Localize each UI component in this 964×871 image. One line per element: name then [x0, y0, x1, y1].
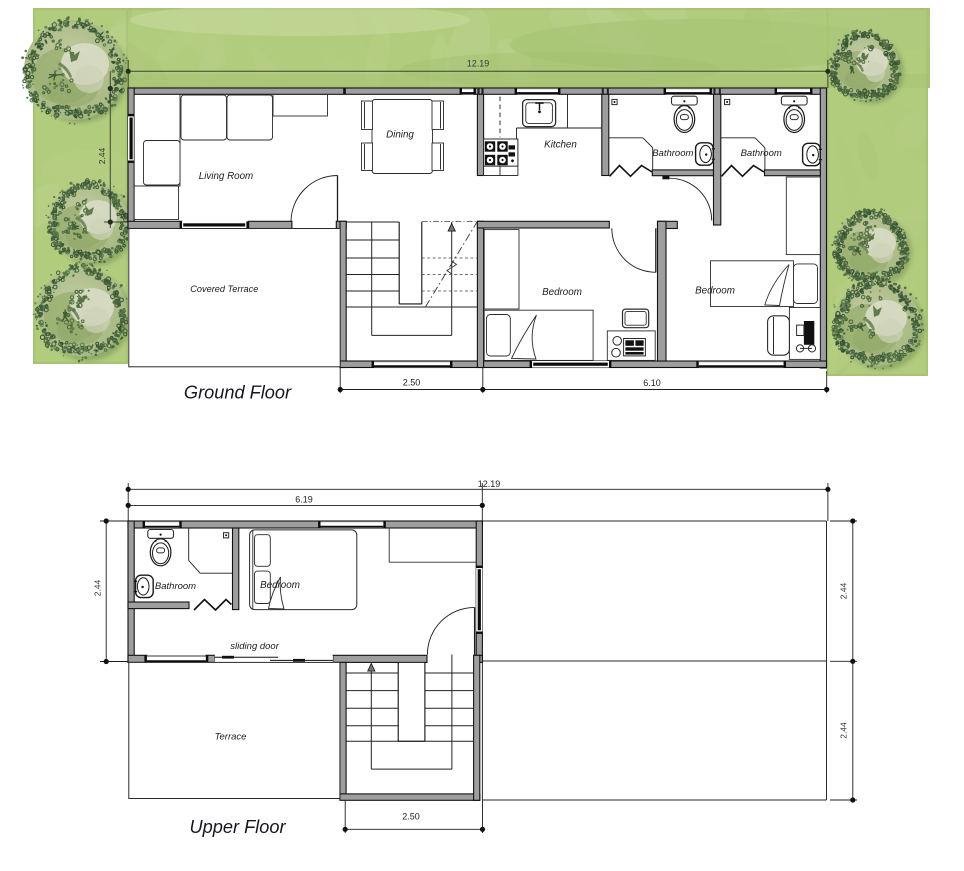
svg-text:12.19: 12.19 [478, 479, 501, 489]
svg-text:Bedroom: Bedroom [542, 287, 582, 298]
svg-text:Bedroom: Bedroom [695, 285, 735, 296]
svg-text:Kitchen: Kitchen [544, 139, 577, 150]
svg-text:Bathroom: Bathroom [155, 581, 196, 592]
svg-text:Bathroom: Bathroom [652, 148, 693, 159]
svg-text:Dining: Dining [386, 129, 414, 140]
svg-text:2.50: 2.50 [403, 377, 421, 387]
svg-text:12.19: 12.19 [467, 59, 490, 69]
svg-text:6.10: 6.10 [643, 378, 661, 388]
svg-text:2.50: 2.50 [402, 812, 420, 822]
svg-text:Covered Terrace: Covered Terrace [190, 284, 258, 294]
svg-text:2.44: 2.44 [93, 579, 103, 596]
svg-text:2.44: 2.44 [97, 147, 107, 164]
svg-text:Bedroom: Bedroom [260, 580, 300, 591]
svg-text:Terrace: Terrace [215, 732, 247, 743]
svg-text:Ground Floor: Ground Floor [184, 383, 292, 403]
svg-text:Upper Floor: Upper Floor [189, 817, 286, 837]
svg-text:2.44: 2.44 [839, 722, 849, 739]
svg-text:6.19: 6.19 [295, 494, 313, 504]
svg-text:sliding door: sliding door [230, 641, 279, 652]
svg-text:Living Room: Living Room [199, 171, 253, 182]
svg-text:2.44: 2.44 [839, 582, 849, 599]
svg-text:Bathroom: Bathroom [741, 148, 782, 159]
